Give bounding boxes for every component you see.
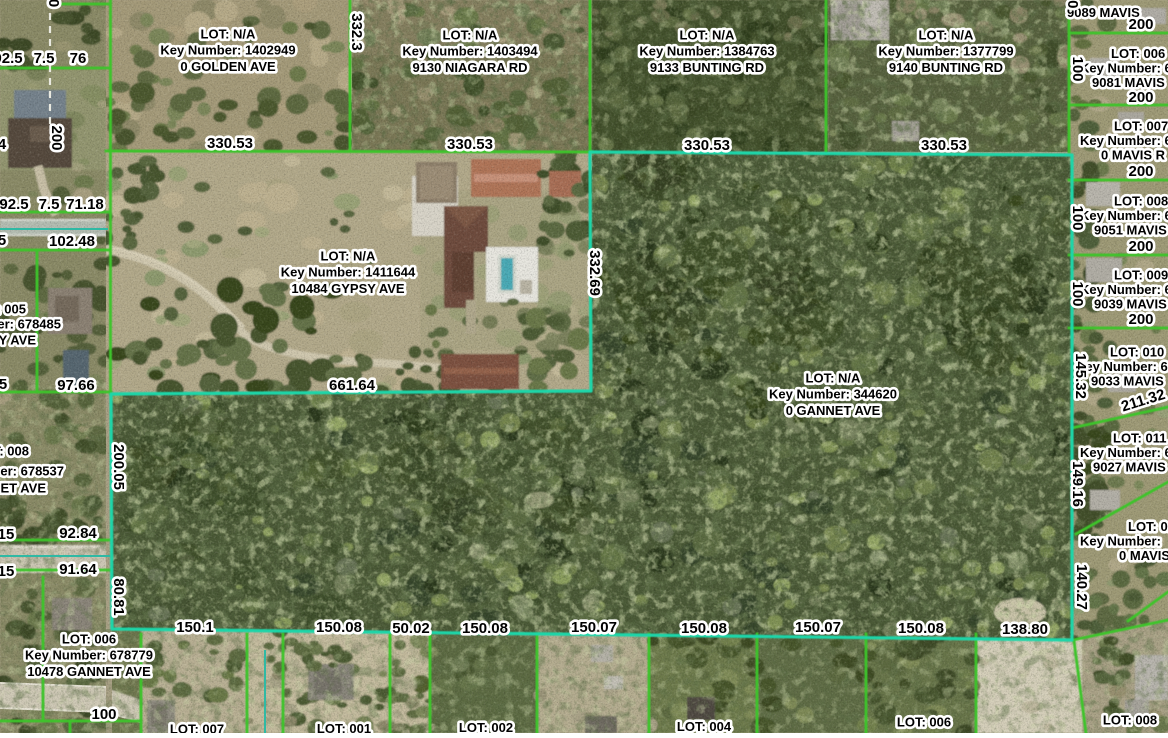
svg-text:LOT: 006: LOT: 006 bbox=[1111, 46, 1165, 61]
svg-text:LOT: 008: LOT: 008 bbox=[0, 444, 29, 459]
svg-text:332.69: 332.69 bbox=[586, 250, 603, 296]
svg-text:Key Number: 1402949: Key Number: 1402949 bbox=[160, 43, 295, 58]
svg-text:76: 76 bbox=[70, 50, 87, 67]
svg-text:GYPSY AVE: GYPSY AVE bbox=[0, 333, 36, 348]
svg-text:0 GOLDEN AVE: 0 GOLDEN AVE bbox=[180, 59, 276, 74]
svg-text:0: 0 bbox=[45, 0, 62, 7]
svg-text:LOT: 005: LOT: 005 bbox=[0, 302, 26, 317]
svg-text:150.1: 150.1 bbox=[176, 619, 214, 636]
svg-text:80.81: 80.81 bbox=[110, 578, 127, 616]
svg-text:10484 GYPSY AVE: 10484 GYPSY AVE bbox=[291, 281, 405, 296]
svg-text:661.64: 661.64 bbox=[329, 377, 376, 394]
svg-text:GANNET AVE: GANNET AVE bbox=[0, 481, 46, 496]
svg-text:Key Number: 1384763: Key Number: 1384763 bbox=[639, 44, 774, 59]
svg-text:50.02: 50.02 bbox=[392, 620, 430, 637]
svg-text:LOT: 011: LOT: 011 bbox=[1113, 431, 1166, 446]
svg-text:150.08: 150.08 bbox=[316, 619, 362, 636]
svg-text:Key Number: 6: Key Number: 6 bbox=[1080, 282, 1168, 297]
svg-text:LOT: 01: LOT: 01 bbox=[1128, 519, 1168, 534]
svg-text:Key Number: 344620: Key Number: 344620 bbox=[769, 387, 897, 402]
svg-text:LOT: 010: LOT: 010 bbox=[1110, 345, 1164, 360]
svg-text:Key Number: 6: Key Number: 6 bbox=[1080, 445, 1168, 460]
svg-text:LOT: 001: LOT: 001 bbox=[317, 721, 371, 733]
svg-text:9140 BUNTING RD: 9140 BUNTING RD bbox=[889, 60, 1003, 75]
svg-text:Key Number: 1377799: Key Number: 1377799 bbox=[878, 44, 1013, 59]
svg-text:9039 MAVIS: 9039 MAVIS bbox=[1094, 297, 1167, 312]
svg-text:5: 5 bbox=[0, 376, 7, 393]
svg-text:LOT: N/A: LOT: N/A bbox=[201, 27, 256, 42]
svg-text:Key Number: 6: Key Number: 6 bbox=[1080, 133, 1168, 148]
svg-text:Key Number: 6: Key Number: 6 bbox=[1080, 208, 1168, 223]
svg-text:LOT: N/A: LOT: N/A bbox=[443, 28, 498, 43]
svg-text:200: 200 bbox=[48, 125, 65, 150]
svg-text:149.16: 149.16 bbox=[1069, 461, 1086, 507]
svg-text:7.5: 7.5 bbox=[39, 196, 60, 213]
svg-text:150.07: 150.07 bbox=[571, 619, 617, 636]
svg-text:LOT: 008: LOT: 008 bbox=[1114, 194, 1168, 209]
svg-text:LOT: 007: LOT: 007 bbox=[170, 722, 224, 734]
svg-text:LOT: N/A: LOT: N/A bbox=[680, 28, 735, 43]
svg-text:200: 200 bbox=[1128, 89, 1153, 106]
svg-text:100: 100 bbox=[1069, 56, 1086, 81]
svg-text:150.08: 150.08 bbox=[462, 620, 508, 637]
svg-text:0 MAVIS R: 0 MAVIS R bbox=[1101, 148, 1166, 163]
svg-text:200: 200 bbox=[1128, 238, 1153, 255]
svg-text:330.53: 330.53 bbox=[207, 135, 253, 152]
svg-text:100: 100 bbox=[91, 706, 116, 723]
svg-text:LOT: N/A: LOT: N/A bbox=[806, 371, 861, 386]
svg-text:15: 15 bbox=[0, 563, 14, 580]
svg-text:Key Number: 6: Key Number: 6 bbox=[1080, 61, 1168, 76]
svg-text:9033 MAVIS: 9033 MAVIS bbox=[1091, 374, 1164, 389]
svg-text:97.66: 97.66 bbox=[57, 377, 95, 394]
svg-text:Key Number:: Key Number: bbox=[1080, 534, 1161, 549]
svg-text:15: 15 bbox=[0, 526, 14, 543]
svg-text:100: 100 bbox=[1069, 281, 1086, 306]
svg-text:0 MAVIS R: 0 MAVIS R bbox=[1119, 548, 1168, 563]
svg-text:145.32: 145.32 bbox=[1072, 353, 1089, 399]
svg-text:91.64: 91.64 bbox=[59, 561, 97, 578]
svg-text:LOT: 007: LOT: 007 bbox=[1114, 119, 1168, 134]
svg-text:Key Number: 68: Key Number: 68 bbox=[1076, 359, 1168, 374]
svg-text:LOT: 006: LOT: 006 bbox=[62, 632, 116, 647]
svg-text:LOT: 009: LOT: 009 bbox=[1114, 268, 1168, 283]
svg-text:200: 200 bbox=[1128, 16, 1153, 33]
svg-text:LOT: 004: LOT: 004 bbox=[677, 719, 732, 733]
svg-text:92.5: 92.5 bbox=[0, 196, 29, 213]
svg-text:100: 100 bbox=[1069, 205, 1086, 230]
svg-text:5: 5 bbox=[0, 232, 6, 249]
svg-text:71.18: 71.18 bbox=[66, 196, 104, 213]
svg-text:LOT: N/A: LOT: N/A bbox=[321, 249, 376, 264]
svg-text:9027 MAVIS: 9027 MAVIS bbox=[1093, 460, 1166, 475]
svg-text:100: 100 bbox=[1064, 0, 1081, 9]
svg-text:LOT: 002: LOT: 002 bbox=[459, 720, 513, 733]
svg-text:7.5: 7.5 bbox=[34, 50, 55, 67]
svg-text:200: 200 bbox=[1128, 311, 1153, 328]
svg-text:330.53: 330.53 bbox=[684, 137, 730, 154]
svg-text:Key Number: 678779: Key Number: 678779 bbox=[25, 648, 153, 663]
svg-text:10478 GANNET AVE: 10478 GANNET AVE bbox=[27, 664, 151, 679]
svg-text:Key Number: 678537: Key Number: 678537 bbox=[0, 464, 64, 479]
svg-text:9081 MAVIS: 9081 MAVIS bbox=[1092, 75, 1165, 90]
svg-text:LOT: 008: LOT: 008 bbox=[1103, 713, 1157, 728]
svg-text:330.53: 330.53 bbox=[921, 137, 967, 154]
svg-text:4: 4 bbox=[0, 136, 7, 153]
svg-text:200: 200 bbox=[1128, 163, 1153, 180]
svg-text:9051 MAVIS: 9051 MAVIS bbox=[1094, 223, 1167, 238]
svg-text:102.48: 102.48 bbox=[49, 233, 95, 250]
svg-text:Key Number: 1403494: Key Number: 1403494 bbox=[402, 44, 538, 59]
svg-text:150.07: 150.07 bbox=[795, 619, 841, 636]
svg-text:9133 BUNTING RD: 9133 BUNTING RD bbox=[650, 60, 764, 75]
svg-text:Key Number: 1411644: Key Number: 1411644 bbox=[281, 265, 416, 280]
svg-text:332.3: 332.3 bbox=[348, 13, 365, 51]
svg-text:LOT: N/A: LOT: N/A bbox=[919, 28, 974, 43]
svg-text:138.80: 138.80 bbox=[1002, 621, 1048, 638]
svg-text:LOT: 006: LOT: 006 bbox=[897, 715, 951, 730]
svg-text:Key Number: 678485: Key Number: 678485 bbox=[0, 317, 61, 332]
svg-text:92.84: 92.84 bbox=[59, 525, 97, 542]
svg-text:92.5: 92.5 bbox=[0, 50, 23, 67]
svg-text:200.05: 200.05 bbox=[110, 444, 127, 490]
svg-text:150.08: 150.08 bbox=[681, 620, 727, 637]
svg-text:9130 NIAGARA RD: 9130 NIAGARA RD bbox=[412, 60, 527, 75]
svg-text:330.53: 330.53 bbox=[447, 136, 493, 153]
svg-text:150.08: 150.08 bbox=[898, 620, 944, 637]
svg-text:140.27: 140.27 bbox=[1073, 564, 1090, 610]
svg-text:0 GANNET AVE: 0 GANNET AVE bbox=[786, 403, 881, 418]
